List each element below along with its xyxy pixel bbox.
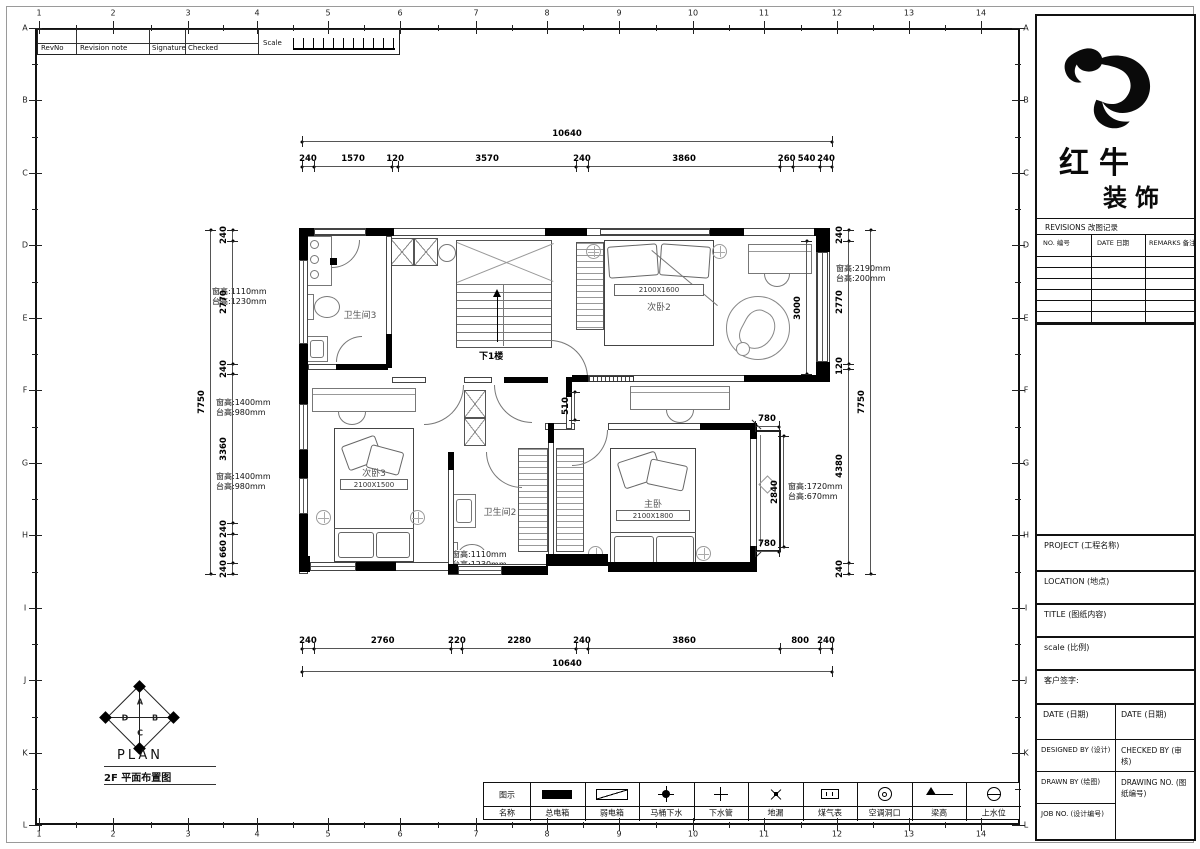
grid-row-label-right: J: [1025, 676, 1027, 685]
legend-col-divider: [912, 783, 913, 821]
grid-minor-tick: [656, 25, 657, 31]
grid-tick: [328, 21, 329, 34]
legend-item-name: 地漏: [768, 808, 784, 819]
dimension-label: 3860: [672, 154, 696, 164]
title-block: 红牛 装饰 REVISIONS 改图记录 NO. 编号 DATE 日期 REMA…: [1035, 14, 1196, 841]
dimension-label: 2840: [770, 480, 780, 504]
dimension-tick: [832, 161, 833, 172]
master-pillow-1: [614, 536, 654, 564]
dimension-tick: [865, 230, 876, 231]
bed2-size-box: 2100X1600: [614, 284, 704, 296]
dimension-tick: [302, 136, 303, 147]
dimension-line: [870, 230, 871, 574]
grid-row-label-right: I: [1025, 604, 1027, 613]
grid-minor-tick: [32, 789, 38, 790]
wall-thin: [750, 430, 757, 552]
bed3-desk: [312, 388, 416, 412]
legend-item-name: 上水位: [982, 808, 1006, 819]
bed3-label: 次卧3: [362, 466, 386, 479]
legend-symbol-water-supply-icon: [987, 794, 1001, 795]
closet-wardrobe-1: [518, 448, 548, 552]
wall-solid: [366, 228, 394, 236]
grid-column-label-top: 9: [616, 9, 621, 18]
grid-row-label-left: B: [22, 96, 28, 105]
grid-minor-tick: [223, 25, 224, 31]
tb-grid-hline-3: [1037, 803, 1115, 804]
master-pillow-2: [656, 536, 694, 564]
revision-strip-col4: [258, 30, 259, 54]
date-right-label: DATE (日期): [1121, 709, 1167, 720]
legend-symbol-header: 图示: [499, 790, 515, 801]
legend-col-divider: [966, 783, 967, 821]
grid-minor-tick: [1015, 282, 1021, 283]
dimension-label: 10640: [552, 129, 582, 139]
window: [817, 252, 828, 362]
bed2-ac-fan-2: [712, 244, 727, 259]
wall-solid: [545, 228, 587, 236]
legend-item-name: 空调洞口: [869, 808, 901, 819]
wall-solid: [700, 423, 757, 430]
window: [458, 566, 502, 575]
dimension-label: 2770: [219, 290, 229, 314]
grid-minor-tick: [32, 137, 38, 138]
wall-solid: [356, 562, 396, 571]
grid-minor-tick: [293, 822, 294, 828]
grid-tick: [29, 318, 42, 319]
legend-symbol-gas-meter-icon: [826, 792, 827, 796]
window-note-6-line1: 窗高:1110mm: [452, 550, 507, 560]
revision-table-row: [1037, 301, 1194, 312]
compass-letter-a: A: [137, 698, 143, 707]
grid-minor-tick: [32, 572, 38, 573]
dimension-tick: [205, 230, 216, 231]
grid-column-label-top: 11: [759, 9, 769, 18]
grid-tick: [1012, 245, 1025, 246]
dimension-tick: [227, 574, 238, 575]
dimension-line: [302, 141, 832, 142]
grid-tick: [29, 608, 42, 609]
legend-item-name: 梁高: [931, 808, 947, 819]
dimension-tick: [778, 547, 789, 548]
grid-column-label-top: 7: [473, 9, 478, 18]
revision-table-row: [1037, 279, 1194, 290]
window: [314, 229, 366, 235]
bed2-chair-base: [736, 342, 750, 356]
grid-minor-tick: [223, 822, 224, 828]
study-desk: [630, 386, 730, 410]
grid-row-label-left: E: [22, 314, 27, 323]
location-label: LOCATION (地点): [1044, 576, 1109, 587]
dimension-tick: [227, 241, 238, 242]
compass-letter-b: B: [152, 714, 158, 723]
bay-window-inner-line: [760, 435, 761, 547]
legend-item-name: 煤气表: [818, 808, 842, 819]
legend-symbol-gas-meter-icon: [832, 792, 833, 796]
grid-minor-tick: [1015, 717, 1021, 718]
legend-symbol-floor-drain-icon: [774, 792, 778, 796]
stair-treads: [457, 284, 551, 346]
dimension-label: 2760: [371, 636, 395, 646]
master-label: 主卧: [644, 497, 662, 510]
drawn-by-label: DRAWN BY (绘图): [1041, 777, 1100, 787]
grid-tick: [29, 825, 42, 826]
grid-minor-tick: [32, 717, 38, 718]
grid-minor-tick: [32, 282, 38, 283]
wall-thin: [464, 377, 492, 383]
tb-line-title: [1037, 603, 1194, 605]
grid-tick: [1012, 318, 1025, 319]
grid-tick: [257, 818, 258, 831]
grid-column-label-top: 3: [185, 9, 190, 18]
dimension-tick: [801, 241, 812, 242]
dimension-tick: [227, 374, 238, 375]
tb-line-sign: [1037, 669, 1194, 671]
revision-strip-col2: [149, 30, 150, 54]
grid-tick: [1012, 173, 1025, 174]
grid-row-label-left: J: [24, 676, 26, 685]
window-note-4-line2: 台高:200mm: [836, 274, 891, 284]
grid-column-label-top: 12: [832, 9, 842, 18]
grid-tick: [693, 818, 694, 831]
bed2-pillow-1: [607, 243, 659, 278]
wall-thin: [392, 377, 426, 383]
dimension-tick: [778, 436, 789, 437]
tb-divider-rev: [1037, 234, 1194, 235]
legend-col-divider: [530, 783, 531, 821]
revision-table-row: [1037, 268, 1194, 279]
grid-minor-tick: [801, 25, 802, 31]
grid-tick: [29, 390, 42, 391]
dimension-tick: [588, 643, 589, 654]
grid-tick: [981, 818, 982, 831]
legend-symbol-beam-height-icon: [935, 794, 953, 795]
grid-minor-tick: [364, 822, 365, 828]
plan-title-underline: [104, 766, 216, 767]
wall-solid: [386, 334, 392, 368]
dimension-label: 120: [386, 154, 404, 164]
grid-minor-tick: [945, 25, 946, 31]
legend-symbol-main-electric-box-icon: [542, 790, 572, 799]
grid-minor-tick: [293, 25, 294, 31]
grid-tick: [1012, 825, 1025, 826]
revision-strip: RevNo Revision note Signature Checked Sc…: [37, 29, 400, 55]
grid-row-label-left: A: [22, 24, 27, 33]
grid-minor-tick: [512, 25, 513, 31]
grid-tick: [693, 21, 694, 34]
dimension-tick: [462, 643, 463, 654]
bath2-label: 卫生间2: [484, 505, 517, 518]
bath3-cabinet-knob-3: [310, 270, 319, 279]
grid-tick: [1012, 100, 1025, 101]
grid-tick: [476, 818, 477, 831]
bath2-sink-basin: [456, 499, 472, 523]
grid-tick: [619, 818, 620, 831]
legend-item-name: 总电箱: [545, 808, 569, 819]
corridor-closet-2: [464, 418, 486, 446]
grid-minor-tick: [438, 25, 439, 31]
wall-solid: [502, 566, 548, 575]
dimension-label: 4380: [835, 454, 845, 478]
dimension-tick: [205, 574, 216, 575]
wall-solid: [504, 377, 548, 383]
dimension-tick: [755, 546, 756, 557]
dimension-tick: [793, 161, 794, 172]
grid-row-label-left: G: [22, 459, 28, 468]
bed2-ac-fan-1: [586, 244, 601, 259]
wall-solid: [710, 228, 744, 236]
dimension-tick: [314, 643, 315, 654]
checked-label: Checked: [188, 44, 218, 52]
revision-table-row: [1037, 312, 1194, 323]
scale-field-label: scale (比例): [1044, 642, 1089, 653]
dimension-line: [755, 426, 779, 427]
grid-minor-tick: [1015, 427, 1021, 428]
legend-symbol-weak-electric-box-icon: [596, 789, 628, 800]
grid-tick: [113, 21, 114, 34]
legend-col-divider: [803, 783, 804, 821]
grid-minor-tick: [1015, 64, 1021, 65]
wall-solid: [299, 228, 308, 260]
stair-rail: [503, 284, 504, 346]
grid-tick: [909, 818, 910, 831]
signature-label: Signature: [152, 44, 186, 52]
grid-tick: [29, 753, 42, 754]
stair-arrow-line: [497, 296, 498, 342]
wall-solid: [448, 564, 458, 574]
dimension-tick: [832, 136, 833, 147]
dimension-line: [848, 230, 849, 574]
grid-minor-tick: [76, 25, 77, 31]
wall-solid: [448, 452, 454, 470]
dimension-label: 780: [758, 539, 776, 549]
grid-minor-tick: [1015, 572, 1021, 573]
dimension-line: [783, 436, 784, 547]
grid-minor-tick: [512, 822, 513, 828]
grid-column-label-top: 10: [688, 9, 698, 18]
dimension-tick: [801, 374, 812, 375]
title-label: TITLE (图纸内容): [1044, 609, 1106, 620]
bed3-desk-edge: [313, 394, 415, 395]
dimension-line: [574, 392, 575, 420]
grid-tick: [1012, 753, 1025, 754]
grid-tick: [113, 818, 114, 831]
grid-column-label-top: 4: [254, 9, 259, 18]
window-note-2-line1: 窗高:1400mm: [216, 398, 271, 408]
window-note-4-line1: 窗高:2190mm: [836, 264, 891, 274]
legend-symbol-ac-hole-icon: [882, 792, 887, 797]
grid-tick: [188, 21, 189, 34]
dimension-tick: [779, 421, 780, 432]
dimension-tick: [832, 643, 833, 654]
dimension-label: 120: [835, 357, 845, 375]
corridor-closet-1: [464, 390, 486, 418]
drawing-no-label: DRAWING NO. (图纸编号): [1121, 777, 1189, 799]
revision-note-label: Revision note: [80, 44, 127, 52]
dimension-label: 3360: [219, 437, 229, 461]
balcony-railing: [588, 376, 634, 382]
grid-minor-tick: [32, 354, 38, 355]
revision-table-row: [1037, 257, 1194, 268]
dimension-label: 540: [798, 154, 816, 164]
window-note-5: 窗高:1720mm 台高:670mm: [788, 482, 843, 503]
dimension-tick: [780, 643, 781, 654]
brand-logo: [1055, 42, 1173, 138]
date-left-label: DATE (日期): [1043, 709, 1089, 720]
grid-minor-tick: [438, 822, 439, 828]
study-desk-edge: [631, 392, 729, 393]
grid-column-label-top: 1: [36, 9, 41, 18]
window-note-5-line2: 台高:670mm: [788, 492, 843, 502]
wall-solid: [814, 228, 830, 236]
revision-strip-divider: [38, 43, 258, 44]
dimension-line: [302, 166, 832, 167]
grid-tick: [764, 818, 765, 831]
plan-title: PLAN: [117, 748, 163, 763]
dimension-tick: [227, 534, 238, 535]
scale-bar: [293, 38, 395, 50]
bed3-ac-fan-2: [410, 510, 425, 525]
dimension-tick: [588, 161, 589, 172]
window: [600, 229, 710, 235]
window-note-5-line1: 窗高:1720mm: [788, 482, 843, 492]
grid-tick: [29, 680, 42, 681]
bath3-sink-basin: [310, 340, 324, 358]
legend-symbol-toilet-drain-icon: [662, 790, 670, 798]
bed3-size-box: 2100X1500: [340, 479, 408, 490]
grid-row-label-left: C: [22, 169, 28, 178]
grid-tick: [547, 818, 548, 831]
hall-cabinet-1: [390, 238, 414, 266]
wall-solid: [299, 344, 308, 404]
grid-tick: [29, 463, 42, 464]
bed3-headboard: [334, 528, 414, 529]
grid-tick: [188, 818, 189, 831]
bed2-label: 次卧2: [647, 300, 671, 313]
wall-solid: [299, 450, 308, 478]
wall-solid: [572, 375, 588, 382]
compass-hline: [106, 717, 174, 718]
grid-tick: [257, 21, 258, 34]
compass-letter-d: D: [122, 714, 129, 723]
grid-row-label-left: F: [23, 386, 28, 395]
designed-by-label: DESIGNED BY (设计): [1041, 745, 1110, 755]
dimension-tick: [569, 420, 580, 421]
wall-thin: [548, 430, 554, 556]
bath3-toilet-bowl: [314, 296, 340, 318]
window: [299, 260, 308, 344]
checked-by-label: CHECKED BY (审核): [1121, 745, 1189, 767]
stair-arrow-head: [493, 289, 501, 297]
grid-tick: [29, 245, 42, 246]
grid-minor-tick: [1015, 137, 1021, 138]
hall-basin: [438, 244, 456, 262]
master-size-box: 2100X1800: [616, 510, 690, 521]
grid-tick: [547, 21, 548, 34]
grid-minor-tick: [729, 25, 730, 31]
drawing-frame: [35, 28, 1020, 825]
grid-column-label-top: 6: [397, 9, 402, 18]
grid-row-label-left: I: [24, 604, 26, 613]
grid-minor-tick: [1015, 499, 1021, 500]
window-note-3-line2: 台高:980mm: [216, 482, 271, 492]
brand-name-line1: 红牛: [1059, 138, 1139, 182]
grid-row-label-left: K: [22, 749, 27, 758]
grid-minor-tick: [801, 822, 802, 828]
grid-row-label-left: D: [22, 241, 28, 250]
dimension-tick: [755, 421, 756, 432]
grid-tick: [1012, 28, 1025, 29]
wall-solid: [548, 423, 554, 443]
grid-minor-tick: [151, 25, 152, 31]
dimension-tick: [843, 369, 854, 370]
dimension-label: 3860: [672, 636, 696, 646]
grid-tick: [29, 173, 42, 174]
grid-minor-tick: [32, 427, 38, 428]
dimension-label: 2770: [835, 290, 845, 314]
dimension-tick: [302, 666, 303, 677]
grid-column-label-top: 8: [544, 9, 549, 18]
dimension-tick: [865, 574, 876, 575]
grid-tick: [1012, 535, 1025, 536]
grid-minor-tick: [151, 822, 152, 828]
grid-minor-tick: [656, 822, 657, 828]
grid-tick: [1012, 608, 1025, 609]
grid-tick: [764, 21, 765, 34]
window: [310, 562, 356, 571]
dimension-line: [302, 648, 832, 649]
grid-tick: [909, 21, 910, 34]
legend-symbol-drain-pipe-icon: [714, 794, 728, 795]
window: [299, 404, 308, 450]
customer-signature-label: 客户签字:: [1044, 675, 1079, 686]
legend-item-name: 马桶下水: [650, 808, 682, 819]
dimension-label: 7750: [197, 390, 207, 414]
dimension-label: 3000: [793, 296, 803, 320]
grid-tick: [837, 818, 838, 831]
window-note-4: 窗高:2190mm 台高:200mm: [836, 264, 891, 285]
drawing-sheet: RevNo Revision note Signature Checked Sc…: [0, 0, 1200, 849]
project-label: PROJECT (工程名称): [1044, 540, 1119, 551]
grid-minor-tick: [873, 822, 874, 828]
grid-column-label-top: 13: [904, 9, 914, 18]
bath3-cabinet-knob-2: [310, 255, 319, 264]
grid-minor-tick: [729, 822, 730, 828]
grid-row-label-left: L: [23, 821, 27, 830]
legend-symbol-gas-meter-icon: [821, 789, 839, 799]
tb-divider-thick: [1037, 323, 1194, 325]
dimension-tick: [832, 666, 833, 677]
grid-tick: [1012, 390, 1025, 391]
legend-col-divider: [585, 783, 586, 821]
grid-minor-tick: [1015, 789, 1021, 790]
window-note-3-line1: 窗高:1400mm: [216, 472, 271, 482]
window-note-3: 窗高:1400mm 台高:980mm: [216, 472, 271, 493]
grid-minor-tick: [1015, 354, 1021, 355]
legend-item-name: 下水管: [709, 808, 733, 819]
window-note-2-line2: 台高:980mm: [216, 408, 271, 418]
dimension-label: 660: [219, 540, 229, 558]
grid-minor-tick: [364, 25, 365, 31]
wall-solid: [816, 362, 830, 376]
legend-col-divider: [694, 783, 695, 821]
legend-col-divider: [748, 783, 749, 821]
wall-solid: [546, 554, 608, 566]
dimension-tick: [314, 161, 315, 172]
job-no-label: JOB NO. (设计编号): [1041, 809, 1104, 819]
grid-tick: [29, 535, 42, 536]
legend-name-header: 名称: [499, 808, 515, 819]
wall-solid: [744, 375, 830, 382]
